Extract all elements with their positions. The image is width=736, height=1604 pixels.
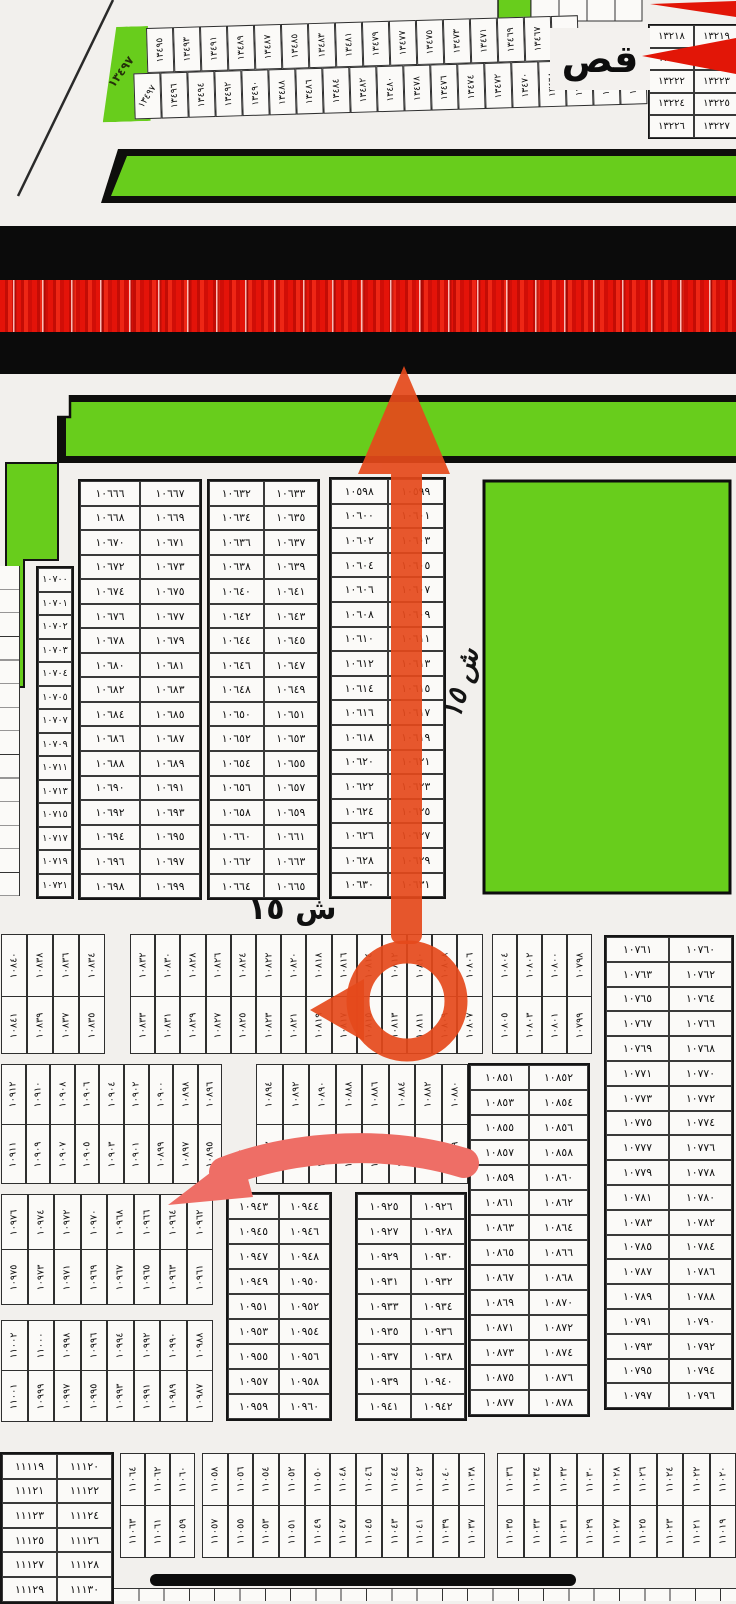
plot-column: ١٠٩٩٨١٠٩٩٧ — [54, 1320, 81, 1422]
plot-cell: ١٣٤٩١ — [200, 26, 228, 72]
plot-column: ١٠٩٩٢١٠٩٩١ — [134, 1320, 161, 1422]
plot-cell: ١٠٨٣٧ — [54, 997, 78, 1053]
plot-column: ١١٠٢٨١١٠٢٧ — [603, 1453, 630, 1558]
plot-cell: ١٠٨٩٦ — [199, 1065, 222, 1125]
plot-cell: ١٣٤٩٣ — [173, 26, 201, 72]
plot-cell: ١٣٤٩٦ — [160, 72, 188, 119]
plot-cell: ١١٠٢٣ — [658, 1506, 683, 1557]
plot-column: ١١٠٤٦١١٠٤٥ — [356, 1453, 382, 1558]
plot-cell: ١٣٤٨٦ — [295, 68, 323, 115]
plot-cell: ١٠٨٢٨ — [181, 935, 204, 997]
table-row: ١٣٢١٨١٣٢١٩ — [649, 25, 736, 48]
plot-column: ١٠٨٣٨١٠٨٣٩ — [27, 934, 53, 1054]
plot-column: ١٠٩٧٠١٠٩٦٩ — [81, 1194, 108, 1305]
plot-cell: ١٠٨٨٠ — [443, 1065, 468, 1125]
plot-cell: ١٣٤٧٦ — [430, 64, 458, 111]
plot-cell: ١١٠٦٣ — [121, 1506, 144, 1557]
plot-cell: ١٠٨٣٠ — [156, 935, 179, 997]
plot-cell: ١١٠٣٧ — [460, 1506, 484, 1557]
plot-band1-block3: ١٠٨٠٤١٠٨٠٥١٠٨٠٢١٠٨٠٣١٠٨٠٠١٠٨٠١١٠٧٩٨١٠٧٩٩ — [492, 934, 592, 1054]
plot-cell: ١٣٤٩٥ — [146, 27, 174, 73]
plot-column: ١٠٩٠٤١٠٩٠٣ — [99, 1064, 124, 1184]
plot-cell: ١٠٨١٨ — [307, 935, 330, 997]
plot-column: ١١٠٦٤١١٠٦٣ — [120, 1453, 145, 1558]
plot-cell: ١٠٨٠٦ — [458, 935, 481, 997]
plot-cell: ١١٠٦٤ — [121, 1454, 144, 1506]
plot-cell: ١١٠٥٣ — [254, 1506, 278, 1557]
plot-cell: ١١٠٣١ — [551, 1506, 576, 1557]
plot-cell: ١٣٤٨٩ — [227, 25, 255, 71]
plot-cell: ١١٠٣٨ — [460, 1454, 484, 1506]
plot-column: ١٠٩٩٤١٠٩٩٣ — [107, 1320, 134, 1422]
plot-cell: ١٣٤٧٧ — [389, 20, 417, 66]
plot-cell: ١٠٨٨٤ — [390, 1065, 415, 1125]
plot-column: ١١٠٢٦١١٠٢٥ — [630, 1453, 657, 1558]
plot-column: ١١٠٣٤١١٠٣٣ — [524, 1453, 551, 1558]
plot-cell: ١١٠٠٠ — [29, 1321, 54, 1371]
plot-cell: ١٠٨٢٩ — [181, 997, 204, 1053]
plot-cell: ١٣٢٢١ — [694, 48, 736, 71]
plot-cell: ١١٠٠١ — [2, 1371, 27, 1421]
plot-cell: ١٠٨٩٧ — [174, 1125, 197, 1183]
plot-band3: ١٠٩٧٦١٠٩٧٥١٠٩٧٤١٠٩٧٣١٠٩٧٢١٠٩٧١١٠٩٧٠١٠٩٦٩… — [1, 1194, 213, 1305]
plot-cell: ١٠٨٣٣ — [131, 997, 154, 1053]
plot-cell: ١٠٨٠٠ — [543, 935, 566, 997]
plot-cell: ١٠٩٠٩ — [27, 1125, 50, 1183]
plot-column: ١٠٨٠٨١٠٨٠٩ — [432, 934, 457, 1054]
plot-cell: ١١٠٥٤ — [254, 1454, 278, 1506]
plot-cell: ١١٠١٩ — [711, 1506, 736, 1557]
plot-cell: ١٣٤٧٣ — [443, 18, 471, 64]
plot-cell: ١٠٨٢٧ — [207, 997, 230, 1053]
plot-column: ١٠٨٨٠١٠٨٧٩ — [442, 1064, 469, 1184]
plot-column: ١٠٨٤٠١٠٨٤١ — [1, 934, 27, 1054]
plot-cell: ١١٠٢٨ — [604, 1454, 629, 1506]
plot-cell: ١٠٨٤٠ — [2, 935, 26, 997]
plot-column: ١٠٨٨٢١٠٨٨١ — [415, 1064, 442, 1184]
plot-column: ١٠٩٩٦١٠٩٩٥ — [81, 1320, 108, 1422]
plot-cell: ١٠٨٨٥ — [363, 1125, 388, 1183]
plot-cell: ١٠٩٦٥ — [135, 1250, 160, 1304]
plot-cell: ١٣٤٨١ — [335, 22, 363, 68]
plot-cell: ١٠٩٧٦ — [2, 1195, 27, 1250]
plot-cell: ١١٠٥٩ — [171, 1506, 194, 1557]
plot-cell: ١١٠٥٥ — [229, 1506, 253, 1557]
plot-column: ١١٠٢٠١١٠١٩ — [710, 1453, 736, 1558]
plot-cell: ١٠٨٧٩ — [443, 1125, 468, 1183]
plot-cell: ١٠٨٣١ — [156, 997, 179, 1053]
plot-column: ١١٠٦٢١١٠٦١ — [145, 1453, 170, 1558]
plot-band2-block1: ١٠٩١٢١٠٩١١١٠٩١٠١٠٩٠٩١٠٩٠٨١٠٩٠٧١٠٩٠٦١٠٩٠٥… — [1, 1064, 222, 1184]
boundary-line — [18, 0, 113, 196]
plot-cell: ١٠٨٠٤ — [493, 935, 516, 997]
plot-cell: ١١٠٤٧ — [331, 1506, 355, 1557]
plot-column: ١٠٨٨٤١٠٨٨٣ — [389, 1064, 416, 1184]
plot-cell: ١٠٩٦١ — [188, 1250, 213, 1304]
plot-cell: ١١٠٢٤ — [658, 1454, 683, 1506]
plot-cell: ١٠٩٩٥ — [82, 1371, 107, 1421]
plot-cell: ١٣٤٨٧ — [254, 24, 282, 70]
plot-cell: ١١٠٥٠ — [306, 1454, 330, 1506]
plot-cell: ١٠٧٩٩ — [568, 997, 591, 1053]
plot-cell: ١٠٩٩٣ — [108, 1371, 133, 1421]
plot-column: ١١٠٤٨١١٠٤٧ — [330, 1453, 356, 1558]
plot-cell: ١٠٩٧٤ — [29, 1195, 54, 1250]
plot-column: ١٠٨١٨١٠٨١٩ — [306, 934, 331, 1054]
plot-cell: ١٠٨٢٠ — [282, 935, 305, 997]
plot-cell: ١١٠٦٠ — [171, 1454, 194, 1506]
plot-cell: ١١٠٢١ — [684, 1506, 709, 1557]
plot-cell: ١٠٩٦٩ — [82, 1250, 107, 1304]
plot-cell: ١٠٨٩٩ — [150, 1125, 173, 1183]
plot-cell: ١٣٤٨٥ — [281, 23, 309, 69]
plot-cell: ١٠٩٠٤ — [100, 1065, 123, 1125]
plot-cell: ١٠٩٠٣ — [100, 1125, 123, 1183]
plot-cell: ١٠٩٠٦ — [76, 1065, 99, 1125]
table-row: ١٣٢٢٠١٣٢٢١ — [649, 48, 736, 71]
plot-cell: ١٣٤٨٤ — [322, 67, 350, 114]
plot-column: ١٠٩٠٨١٠٩٠٧ — [50, 1064, 75, 1184]
plot-cell: ١٠٨٩٠ — [310, 1065, 335, 1125]
plot-cell: ١٠٩١٠ — [27, 1065, 50, 1125]
plot-cell: ١١٠٣٥ — [498, 1506, 523, 1557]
plot-cell: ١٣٤٨٠ — [376, 65, 404, 112]
plot-column: ١٠٧٩٨١٠٧٩٩ — [567, 934, 592, 1054]
plot-cell: ١١٠٥٦ — [229, 1454, 253, 1506]
plot-cell: ١١٠٦١ — [146, 1506, 169, 1557]
plot-cell: ١٠٨٠٩ — [433, 997, 456, 1053]
plot-column: ١٠٨٩٤١٠٨٩٣ — [256, 1064, 283, 1184]
plot-cell: ١٣٢٢٧ — [694, 115, 736, 138]
plot-band5-block-a: ١١٠٦٤١١٠٦٣١١٠٦٢١١٠٦١١١٠٦٠١١٠٥٩ — [120, 1453, 195, 1558]
plot-cell: ١١٠٢٢ — [684, 1454, 709, 1506]
plot-cell: ١١٠٢٥ — [631, 1506, 656, 1557]
table-row: ١٣٢٢٢١٣٢٢٣ — [649, 70, 736, 93]
plot-cell: ١٠٨٩٣ — [257, 1125, 282, 1183]
plot-cell: ١١٠٤٨ — [331, 1454, 355, 1506]
plot-cell: ١٠٨١١ — [408, 997, 431, 1053]
green-strip-upper — [101, 149, 736, 203]
green-strip-lower — [57, 395, 736, 463]
plot-column: ١١٠٥٨١١٠٥٧ — [202, 1453, 228, 1558]
plot-cell: ١٠٩٩٦ — [82, 1321, 107, 1371]
plot-cell: ١١٠٣٠ — [578, 1454, 603, 1506]
plot-cell: ١٠٨٣٥ — [80, 997, 104, 1053]
plot-column: ١١٠٣٠١١٠٢٩ — [577, 1453, 604, 1558]
plot-column: ١٠٨٣٤١٠٨٣٥ — [79, 934, 105, 1054]
plot-cell: ١٠٨٣٨ — [28, 935, 52, 997]
plot-column: ١٠٨٨٦١٠٨٨٥ — [362, 1064, 389, 1184]
plot-column: ١٠٨٩٢١٠٨٩١ — [283, 1064, 310, 1184]
plot-cell: ١٠٨١٧ — [333, 997, 356, 1053]
plot-cell: ١٠٩٠١ — [125, 1125, 148, 1183]
plot-column: ١١٠٤٠١١٠٣٩ — [433, 1453, 459, 1558]
plot-cell: ١٠٨٠٨ — [433, 935, 456, 997]
plot-column: ١٠٩٨٨١٠٩٨٧ — [187, 1320, 214, 1422]
plot-cell: ١٣٢١٩ — [694, 25, 736, 48]
plot-cell: ١٠٩٩٨ — [55, 1321, 80, 1371]
plot-column: ١١٠٤٢١١٠٤١ — [408, 1453, 434, 1558]
plot-cell: ١٠٨٩٥ — [199, 1125, 222, 1183]
plot-cell: ١٠٨٨٢ — [416, 1065, 441, 1125]
plot-cell: ١٠٩٨٨ — [188, 1321, 213, 1371]
plot-cell: ١٣٤٩٢ — [214, 70, 242, 117]
plot-cell: ١١٠٤٠ — [434, 1454, 458, 1506]
plot-cell: ١١٠٣٤ — [525, 1454, 550, 1506]
plot-column: ١٠٨١٦١٠٨١٧ — [332, 934, 357, 1054]
plot-column: ١٠٨٣٠١٠٨٣١ — [155, 934, 180, 1054]
plot-cell: ١٣٤٦٧ — [524, 16, 552, 62]
plot-column: ١٠٨٠٤١٠٨٠٥ — [492, 934, 517, 1054]
plot-cell: ١٠٨٩٢ — [284, 1065, 309, 1125]
plot-cell: ١٠٨٣٦ — [54, 935, 78, 997]
plot-cell: ١٠٨٠١ — [543, 997, 566, 1053]
plot-column: ١٠٩٦٨١٠٩٦٧ — [107, 1194, 134, 1305]
plot-cell: ١٣٢٢٦ — [649, 115, 694, 138]
plot-cell: ١٣٢٢٤ — [649, 93, 694, 116]
plot-cell: ١٠٨٨٨ — [337, 1065, 362, 1125]
plot-column: ١٠٩١٢١٠٩١١ — [1, 1064, 26, 1184]
cadastral-subdivision-map: { "labels": { "erase_patch": "قص", "stre… — [0, 0, 736, 1600]
plot-cell: ١١٠٢٩ — [578, 1506, 603, 1557]
street-15-label: ش ١٥ — [248, 892, 336, 927]
plot-column: ١١٠٣٢١١٠٣١ — [550, 1453, 577, 1558]
plot-column: ١٠٩٧٤١٠٩٧٣ — [28, 1194, 55, 1305]
plot-column: ١١٠٠٠١٠٩٩٩ — [28, 1320, 55, 1422]
plot-cell: ١١٠٥٢ — [280, 1454, 304, 1506]
plot-cell: ١٠٩٦٤ — [161, 1195, 186, 1250]
plot-cell: ١٠٩٦٣ — [161, 1250, 186, 1304]
plot-band1-block2: ١٠٨٣٢١٠٨٣٣١٠٨٣٠١٠٨٣١١٠٨٢٨١٠٨٢٩١٠٨٢٦١٠٨٢٧… — [130, 934, 483, 1054]
plot-column: ١١٠٠٢١١٠٠١ — [1, 1320, 28, 1422]
plot-column: ١١٠٢٤١١٠٢٣ — [657, 1453, 684, 1558]
plot-cell: ١٠٨٢٤ — [232, 935, 255, 997]
plot-cell: ١٠٨٣٢ — [131, 935, 154, 997]
plot-cell: ١٣٤٩٧ — [133, 73, 161, 120]
plot-column: ١٠٨٠٦١٠٨٠٧ — [457, 934, 482, 1054]
plot-cell: ١١٠٢٦ — [631, 1454, 656, 1506]
plot-column: ١٠٩٠٢١٠٩٠١ — [124, 1064, 149, 1184]
plot-cell: ١٠٩٨٩ — [161, 1371, 186, 1421]
plot-band2-block2: ١٠٨٩٤١٠٨٩٣١٠٨٩٢١٠٨٩١١٠٨٩٠١٠٨٨٩١٠٨٨٨١٠٨٨٧… — [256, 1064, 468, 1184]
plot-column: ١١٠٥٠١١٠٤٩ — [305, 1453, 331, 1558]
plot-band1-block1: ١٠٨٤٠١٠٨٤١١٠٨٣٨١٠٨٣٩١٠٨٣٦١٠٨٣٧١٠٨٣٤١٠٨٣٥ — [1, 934, 105, 1054]
plot-column: ١٠٨٢٤١٠٨٢٥ — [231, 934, 256, 1054]
plot-cell: ١٠٩٠٠ — [150, 1065, 173, 1125]
plot-cell: ١١٠٥٨ — [203, 1454, 227, 1506]
plot-cell: ١٠٨٢٥ — [232, 997, 255, 1053]
plot-cell: ١٣٤٦٩ — [497, 17, 525, 63]
plot-band5-block-c: ١١٠٣٦١١٠٣٥١١٠٣٤١١٠٣٣١١٠٣٢١١٠٣١١١٠٣٠١١٠٢٩… — [497, 1453, 736, 1558]
plot-cell: ١٠٨٨١ — [416, 1125, 441, 1183]
plot-cell: ١٠٨١٣ — [383, 997, 406, 1053]
plot-cell: ١١٠٣٣ — [525, 1506, 550, 1557]
plot-cell: ١٣٤٧٢ — [484, 62, 512, 109]
plot-column: ١٠٨٣٢١٠٨٣٣ — [130, 934, 155, 1054]
plot-cell: ١٠٨٨٣ — [390, 1125, 415, 1183]
plot-cell: ١١٠٣٦ — [498, 1454, 523, 1506]
plot-cell: ١٠٨١٤ — [358, 935, 381, 997]
erase-patch-label: قص — [550, 28, 650, 90]
plot-cell: ١٠٨٠٧ — [458, 997, 481, 1053]
plot-cell: ١٠٩٧٣ — [29, 1250, 54, 1304]
plot-cell: ١٠٨٢١ — [282, 997, 305, 1053]
plot-cell: ١٠٨٤١ — [2, 997, 26, 1053]
plot-column: ١١٠٥٤١١٠٥٣ — [253, 1453, 279, 1558]
plot-cell: ١٠٨٣٩ — [28, 997, 52, 1053]
plot-cell: ١٠٩٩١ — [135, 1371, 160, 1421]
plot-cell: ١٠٨٢٢ — [257, 935, 280, 997]
plot-cell: ١٠٩١٢ — [2, 1065, 25, 1125]
table-row: ١٣٢٢٦١٣٢٢٧ — [649, 115, 736, 138]
plot-column: ١٠٨٢٦١٠٨٢٧ — [206, 934, 231, 1054]
plot-cell: ١٣٤٧٠ — [511, 61, 539, 108]
plot-column: ١٠٨٢٢١٠٨٢٣ — [256, 934, 281, 1054]
plot-column: ١١٠٣٦١١٠٣٥ — [497, 1453, 524, 1558]
plot-cell: ١٠٩٠٢ — [125, 1065, 148, 1125]
plot-cell: ١١٠٤٤ — [383, 1454, 407, 1506]
plot-column: ١٠٨٢٨١٠٨٢٩ — [180, 934, 205, 1054]
plot-column: ١١٠٢٢١١٠٢١ — [683, 1453, 710, 1558]
plot-cell: ١٠٩٦٢ — [188, 1195, 213, 1250]
plot-cell: ١٠٨١٢ — [383, 935, 406, 997]
plot-cell: ١٠٨٨٦ — [363, 1065, 388, 1125]
plot-cell: ١٠٩٦٦ — [135, 1195, 160, 1250]
plot-band4: ١١٠٠٢١١٠٠١١١٠٠٠١٠٩٩٩١٠٩٩٨١٠٩٩٧١٠٩٩٦١٠٩٩٥… — [1, 1320, 213, 1422]
plot-cell: ١٣٢٢٢ — [649, 70, 694, 93]
plot-cell: ١٣٢٢٠ — [649, 48, 694, 71]
plot-cell: ١٠٩٧٠ — [82, 1195, 107, 1250]
plot-column: ١٠٨١٠١٠٨١١ — [407, 934, 432, 1054]
plot-cell: ١١٠٢٠ — [711, 1454, 736, 1506]
plot-cell: ١٠٩٠٧ — [51, 1125, 74, 1183]
plot-cell: ١٠٨٨٧ — [337, 1125, 362, 1183]
plot-cell: ١١٠٥١ — [280, 1506, 304, 1557]
plot-cell: ١٠٧٩٨ — [568, 935, 591, 997]
bottom-road-bar — [150, 1574, 576, 1586]
plot-column: ١٠٨٩٠١٠٨٨٩ — [309, 1064, 336, 1184]
plot-cell: ١٠٩٧١ — [55, 1250, 80, 1304]
plot-cell: ١٣٢١٨ — [649, 25, 694, 48]
plot-cell: ١٠٩٩٢ — [135, 1321, 160, 1371]
plot-column: ١٠٨٢٠١٠٨٢١ — [281, 934, 306, 1054]
plot-column: ١٠٨٠٠١٠٨٠١ — [542, 934, 567, 1054]
plot-cell: ١١٠٣٢ — [551, 1454, 576, 1506]
green-square-park — [484, 481, 730, 893]
plot-cell: ١٠٩٦٨ — [108, 1195, 133, 1250]
plot-column: ١٠٩١٠١٠٩٠٩ — [26, 1064, 51, 1184]
plot-cell: ١١٠٥٧ — [203, 1506, 227, 1557]
plot-cell: ١٣٤٧٨ — [403, 65, 431, 112]
plot-cell: ١١٠٤٥ — [357, 1506, 381, 1557]
plot-cell: ١٣٢٢٥ — [694, 93, 736, 116]
clipped-plot-column — [0, 566, 20, 896]
plot-cell: ١٠٨٠٣ — [518, 997, 541, 1053]
plot-cell: ١٠٩٦٧ — [108, 1250, 133, 1304]
plot-cell: ١٠٩٠٨ — [51, 1065, 74, 1125]
plot-cell: ١٠٨١٥ — [358, 997, 381, 1053]
plot-cell: ١١٠٢٧ — [604, 1506, 629, 1557]
plot-cell: ١٣٤٨٢ — [349, 66, 377, 113]
plot-column: ١٠٨٩٨١٠٨٩٧ — [173, 1064, 198, 1184]
plot-column: ١٠٨٨٨١٠٨٨٧ — [336, 1064, 363, 1184]
plot-cell: ١٣٤٩٤ — [187, 71, 215, 118]
plot-column: ١١٠٥٦١١٠٥٥ — [228, 1453, 254, 1558]
plot-cell: ١٠٨٣٤ — [80, 935, 104, 997]
plot-cell: ١٠٨٩٤ — [257, 1065, 282, 1125]
plot-cell: ١٠٩٨٧ — [188, 1371, 213, 1421]
plot-cell: ١٣٤٧٥ — [416, 19, 444, 65]
plot-cell: ١٠٩١١ — [2, 1125, 25, 1183]
plot-cell: ١٠٨١٦ — [333, 935, 356, 997]
plot-cell: ١٣٢٢٣ — [694, 70, 736, 93]
top-right-plot-table: ١٣٢١٨١٣٢١٩١٣٢٢٠١٣٢٢١١٣٢٢٢١٣٢٢٣١٣٢٢٤١٣٢٢٥… — [648, 24, 736, 139]
plot-column: ١٠٩٠٦١٠٩٠٥ — [75, 1064, 100, 1184]
plot-cell: ١٠٨٠٢ — [518, 935, 541, 997]
plot-cell: ١٣٤٧٩ — [362, 21, 390, 67]
plot-column: ١٠٩٧٢١٠٩٧١ — [54, 1194, 81, 1305]
plot-cell: ١٠٩٩٤ — [108, 1321, 133, 1371]
plot-cell: ١١٠٤١ — [409, 1506, 433, 1557]
plot-column: ١٠٨١٤١٠٨١٥ — [357, 934, 382, 1054]
plot-column: ١١٠٤٤١١٠٤٣ — [382, 1453, 408, 1558]
plot-cell: ١٣٤٧١ — [470, 18, 498, 64]
plot-cell: ١٣٤٨٣ — [308, 22, 336, 68]
table-row: ١٣٢٢٤١٣٢٢٥ — [649, 93, 736, 116]
plot-cell: ١٠٩٠٥ — [76, 1125, 99, 1183]
plot-column: ١٠٩٠٠١٠٨٩٩ — [149, 1064, 174, 1184]
plot-cell: ١١٠٤٣ — [383, 1506, 407, 1557]
plot-column: ١٠٩٦٤١٠٩٦٣ — [160, 1194, 187, 1305]
plot-column: ١١٠٦٠١١٠٥٩ — [170, 1453, 195, 1558]
plot-cell: ١٠٩٩٩ — [29, 1371, 54, 1421]
plot-cell: ١٠٩٩٧ — [55, 1371, 80, 1421]
plot-cell: ١٠٨٢٦ — [207, 935, 230, 997]
plot-cell: ١١٠٣٩ — [434, 1506, 458, 1557]
plot-cell: ١٠٩٩٠ — [161, 1321, 186, 1371]
plot-column: ١١٠٥٢١١٠٥١ — [279, 1453, 305, 1558]
plot-column: ١٠٩٧٦١٠٩٧٥ — [1, 1194, 28, 1305]
plot-cell: ١١٠٤٩ — [306, 1506, 330, 1557]
plot-cell: ١٠٨١٠ — [408, 935, 431, 997]
plot-cell: ١٠٨٨٩ — [310, 1125, 335, 1183]
plot-column: ١٠٨٩٦١٠٨٩٥ — [198, 1064, 223, 1184]
plot-cell: ١٠٩٧٢ — [55, 1195, 80, 1250]
plot-cell: ١٠٨١٩ — [307, 997, 330, 1053]
plot-cell: ١٠٩٧٥ — [2, 1250, 27, 1304]
plot-column: ١٠٨١٢١٠٨١٣ — [382, 934, 407, 1054]
plot-cell: ١٣٤٩٠ — [241, 69, 269, 116]
plot-cell: ١٠٨٢٣ — [257, 997, 280, 1053]
plot-cell: ١١٠٦٢ — [146, 1454, 169, 1506]
plot-band5-block-b: ١١٠٥٨١١٠٥٧١١٠٥٦١١٠٥٥١١٠٥٤١١٠٥٣١١٠٥٢١١٠٥١… — [202, 1453, 485, 1558]
plot-column: ١٠٨٠٢١٠٨٠٣ — [517, 934, 542, 1054]
plot-cell: ١٠٨٩٨ — [174, 1065, 197, 1125]
plot-column: ١٠٩٩٠١٠٩٨٩ — [160, 1320, 187, 1422]
plot-column: ١١٠٣٨١١٠٣٧ — [459, 1453, 485, 1558]
plot-cell: ١١٠٤٦ — [357, 1454, 381, 1506]
plot-cell: ١٠٨٠٥ — [493, 997, 516, 1053]
plot-cell: ١٣٤٨٨ — [268, 69, 296, 116]
plot-cell: ١١٠٠٢ — [2, 1321, 27, 1371]
plot-column: ١٠٨٣٦١٠٨٣٧ — [53, 934, 79, 1054]
plot-cell: ١٣٤٧٤ — [457, 63, 485, 110]
plot-column: ١٠٩٦٢١٠٩٦١ — [187, 1194, 214, 1305]
plot-cell: ١٠٨٩١ — [284, 1125, 309, 1183]
plot-column: ١٠٩٦٦١٠٩٦٥ — [134, 1194, 161, 1305]
plot-cell: ١١٠٤٢ — [409, 1454, 433, 1506]
